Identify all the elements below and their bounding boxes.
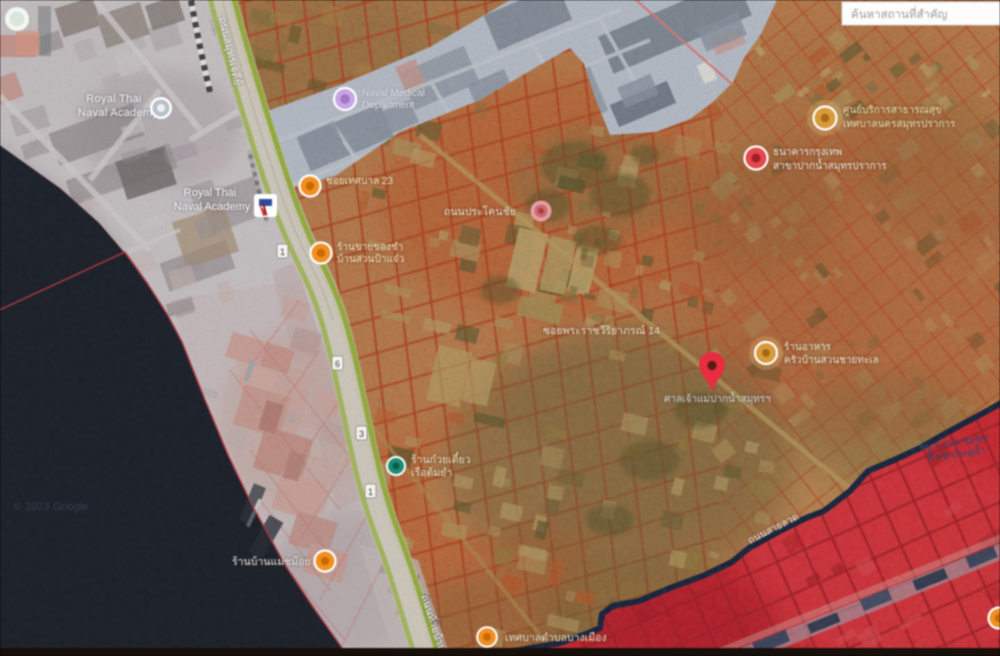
svg-text:Naval Medical: Naval Medical (362, 88, 425, 99)
svg-text:ศาลเจ้าแม่ปากน้ำสมุทรฯ: ศาลเจ้าแม่ปากน้ำสมุทรฯ (664, 391, 771, 405)
svg-text:สาขาปากน้ำสมุทรปราการ: สาขาปากน้ำสมุทรปราการ (773, 158, 887, 172)
svg-text:ค้นหาสถานที่สำคัญ: ค้นหาสถานที่สำคัญ (851, 6, 948, 21)
svg-text:ร้านบ้านแม่ชม้อย: ร้านบ้านแม่ชม้อย (232, 556, 311, 568)
svg-text:เทศบาลนครสมุทรปราการ: เทศบาลนครสมุทรปราการ (843, 119, 956, 130)
svg-text:Department: Department (362, 100, 414, 111)
svg-text:ซอยเทศบาล 23: ซอยเทศบาล 23 (326, 176, 393, 187)
svg-text:Naval Academy: Naval Academy (78, 107, 159, 119)
svg-text:6: 6 (335, 359, 340, 369)
svg-text:เทศบาลตำบลบางเมือง: เทศบาลตำบลบางเมือง (505, 631, 607, 644)
svg-text:ร้านขายของชำ: ร้านขายของชำ (337, 241, 403, 253)
svg-text:ธนาคารกรุงเทพ: ธนาคารกรุงเทพ (773, 147, 842, 158)
svg-text:1: 1 (368, 487, 373, 497)
svg-text:Royal Thai: Royal Thai (184, 187, 236, 199)
svg-text:ถนนประโคนชัย: ถนนประโคนชัย (444, 205, 516, 218)
svg-text:© 2023 Google: © 2023 Google (14, 501, 88, 513)
svg-text:ซอยพระราชวีริยาภรณ์ 14: ซอยพระราชวีริยาภรณ์ 14 (543, 324, 660, 337)
svg-text:ร้านก๋วยเตี๋ยว: ร้านก๋วยเตี๋ยว (411, 451, 471, 466)
svg-text:ร้านอาหาร: ร้านอาหาร (784, 341, 832, 353)
svg-text:3: 3 (359, 429, 364, 439)
svg-text:Naval Academy: Naval Academy (174, 201, 251, 213)
svg-text:Royal Thai: Royal Thai (86, 93, 141, 105)
svg-text:ศูนย์บริการสาธารณสุข: ศูนย์บริการสาธารณสุข (843, 104, 942, 116)
svg-text:เรือต้มยำ: เรือต้มยำ (411, 466, 452, 479)
svg-text:1: 1 (280, 247, 285, 257)
svg-text:บ้านสวนป้าแจ๋ว: บ้านสวนป้าแจ๋ว (337, 253, 404, 265)
svg-text:ครัวบ้านสวนชายทะเล: ครัวบ้านสวนชายทะเล (784, 354, 879, 366)
